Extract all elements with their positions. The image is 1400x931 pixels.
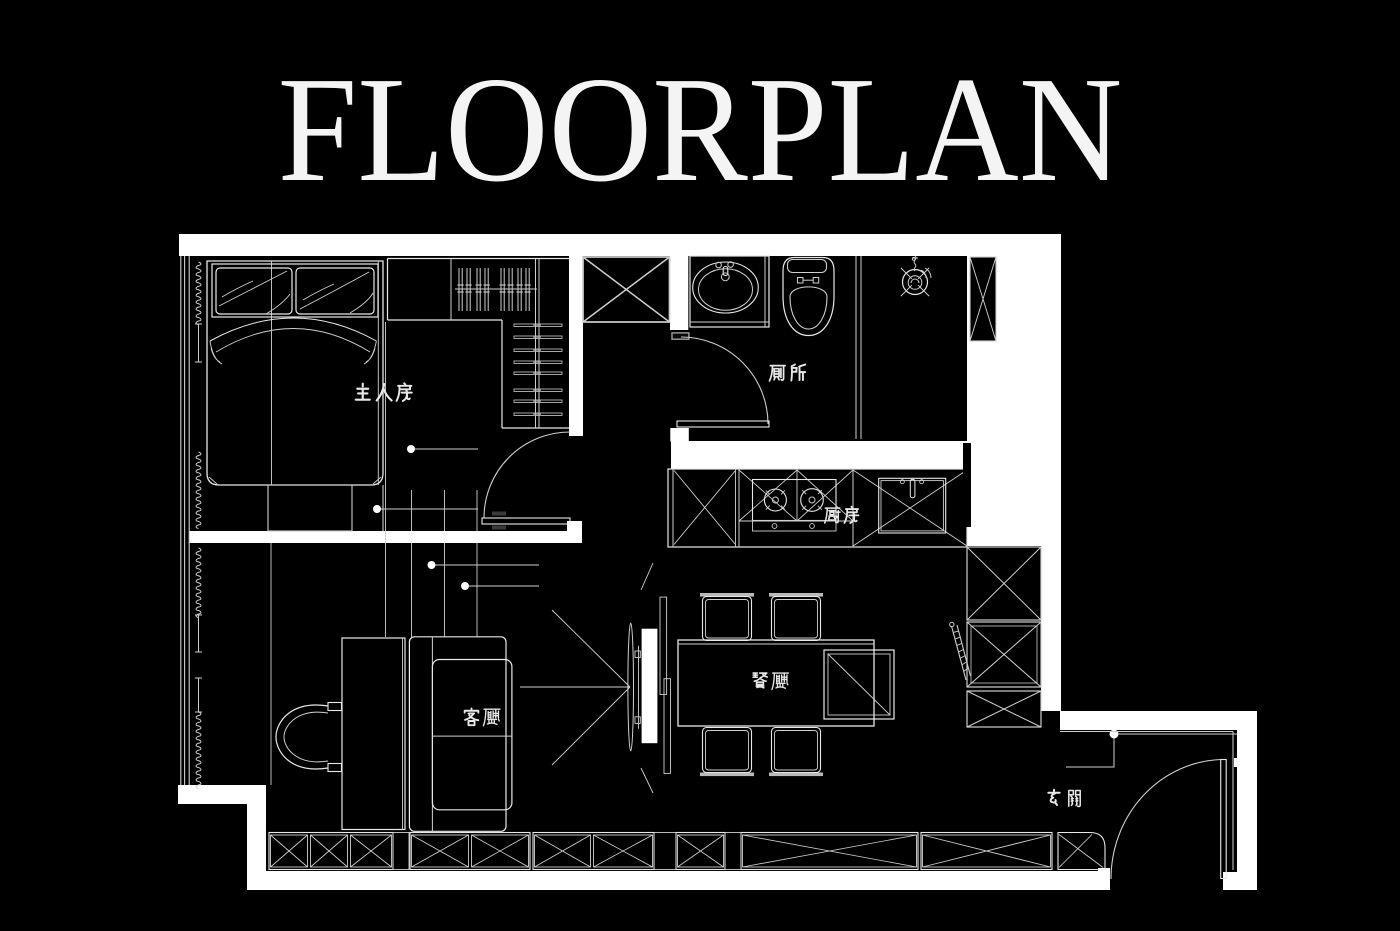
svg-text:FLOORPLAN: FLOORPLAN [278,46,1123,213]
